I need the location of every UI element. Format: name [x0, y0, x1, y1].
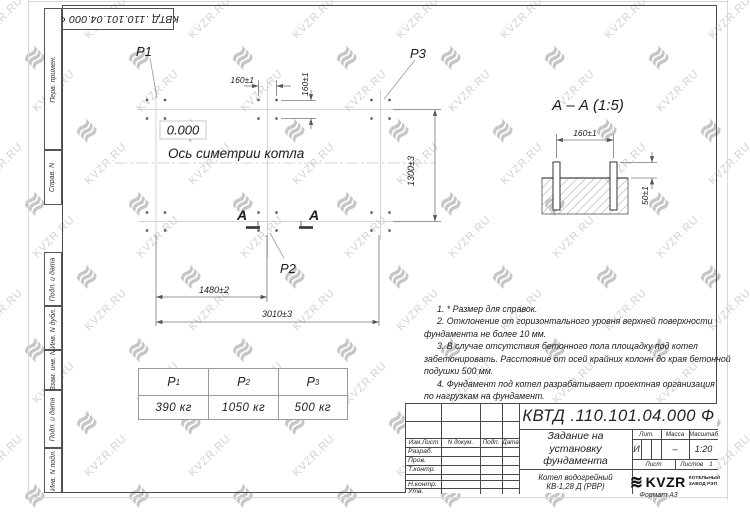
- tb-mass-value: –: [661, 439, 689, 459]
- tb-row-prov: Пров.: [408, 457, 426, 464]
- note-line: 2. Отклонение от горизонтального уровня …: [424, 315, 731, 327]
- tb-lit-label: Лит.: [632, 429, 661, 439]
- tb-product: Котел водогрейный КВ-1,28 Д (РВР): [519, 470, 632, 494]
- tb-col-dokum: N докум.: [441, 438, 480, 447]
- doc-number-rotated: КВТД .110.101.04.000 Ф: [57, 13, 179, 25]
- format-label: Формат А3: [600, 492, 717, 499]
- loads-head-p1: P1: [139, 369, 208, 396]
- kvzr-watermark-logo: ≋: [746, 479, 750, 514]
- loads-head-p2: P2: [209, 369, 277, 396]
- left-box-perv-primen: Перв. примен.: [44, 8, 62, 150]
- tb-row-nkontr: Н.контр.: [408, 481, 437, 488]
- tb-product-line: Котел водогрейный: [538, 473, 612, 483]
- tb-logo: ≋ KVZR КОТЕЛЬНЫЙ ЗАВОД РЭП: [632, 469, 718, 494]
- loads-col-p3: P3 500 кг: [278, 369, 347, 419]
- left-box-label: Инв. N дубл.: [50, 308, 57, 349]
- load-subscript: 1: [176, 378, 180, 387]
- left-box-label: Подп. и дата: [50, 257, 57, 301]
- loads-col-p2: P2 1050 кг: [208, 369, 277, 419]
- left-box-label: Перв. примен.: [50, 56, 57, 103]
- load-subscript: 2: [245, 378, 249, 387]
- tb-row-tkontr: Т.контр.: [408, 466, 435, 473]
- tb-col-data: Дата: [502, 438, 519, 447]
- kvzr-watermark-text: KVZR.RU: [0, 0, 25, 41]
- paper-edge-right: [727, 0, 728, 500]
- loads-value-p1: 390 кг: [139, 396, 208, 419]
- paper-edge-top: [28, 1, 728, 2]
- loads-value-p3: 500 кг: [279, 396, 347, 419]
- tb-row-razrab: Разраб.: [408, 448, 433, 455]
- kvzr-logo-text: KVZR: [646, 474, 686, 490]
- left-box-label: Подп. и дата: [50, 397, 57, 441]
- tb-sheets-value: 1: [709, 461, 713, 468]
- notes: 1. * Размер для справок.2. Отклонение от…: [424, 303, 731, 403]
- tb-sheets-label: Листов: [680, 461, 703, 468]
- tb-scale-value: 1:20: [689, 439, 718, 459]
- paper-edge-left: [28, 0, 29, 500]
- note-line: забетонировать. Расстояние от осей крайн…: [424, 353, 731, 365]
- loads-value-p2: 1050 кг: [209, 396, 277, 419]
- kvzr-watermark-logo: ≋: [746, 41, 750, 76]
- left-box-podp-data-1: Подп. и дата: [44, 252, 62, 306]
- drawing-sheet: { "colors": { "line": "#4a4a4a", "waterm…: [0, 0, 750, 500]
- left-box-label: Справ. N: [50, 163, 57, 192]
- doc-number-box: КВТД .110.101.04.000 Ф: [62, 8, 174, 30]
- tb-product-line: КВ-1,28 Д (РВР): [546, 482, 604, 492]
- left-box-sprav-n: Справ. N: [44, 150, 62, 205]
- loads-table: P1 390 кг P2 1050 кг P3 500 кг: [138, 368, 348, 420]
- kvzr-logo-caption: КОТЕЛЬНЫЙ ЗАВОД РЭП: [689, 476, 720, 487]
- left-box-label: Взам. инв. N: [50, 350, 57, 391]
- tb-title-line: фундамента: [543, 455, 608, 468]
- note-line: 1. * Размер для справок.: [424, 303, 731, 315]
- left-box-inv-podl: Инв. N подл.: [44, 448, 62, 493]
- note-line: по нагрузкам на фундамент.: [424, 390, 731, 402]
- kvzr-watermark-text: KVZR.RU: [0, 141, 25, 188]
- title-block: Изм.Лист N докум. Подп. Дата Разраб. Про…: [405, 403, 717, 493]
- load-symbol: P: [167, 375, 175, 389]
- load-symbol: P: [306, 375, 314, 389]
- tb-drawing-title: Задание на установку фундамента: [519, 429, 632, 469]
- tb-col-podp: Подп.: [480, 438, 502, 447]
- loads-col-p1: P1 390 кг: [139, 369, 208, 419]
- note-line: фундамента не более 10 мм.: [424, 328, 731, 340]
- tb-doc-number: КВТД .110.101.04.000 Ф: [519, 404, 718, 429]
- tb-sheets-cell: Листов 1: [675, 459, 718, 469]
- kvzr-watermark-text: KVZR.RU: [0, 287, 25, 334]
- kvzr-watermark-text: KVZR.RU: [0, 433, 25, 480]
- tb-scale-label: Масштаб: [689, 429, 718, 439]
- tb-col-izm: Изм.Лист: [406, 438, 441, 447]
- tb-row-utv: Утв.: [408, 488, 423, 495]
- left-box-vzam-inv: Взам. инв. N: [44, 350, 62, 390]
- left-box-label: Инв. N подл.: [50, 450, 57, 491]
- load-subscript: 3: [315, 378, 319, 387]
- note-line: 3. В случае отсутствия бетонного пола пл…: [424, 340, 731, 352]
- tb-lit-value: И: [632, 439, 641, 459]
- kvzr-logo-icon: ≋: [630, 470, 643, 493]
- note-line: 4. Фундамент под котел разрабатывает про…: [424, 378, 731, 390]
- kvzr-watermark-logo: ≋: [746, 187, 750, 222]
- left-box-inv-dubl: Инв. N дубл.: [44, 306, 62, 350]
- left-box-podp-data-2: Подп. и дата: [44, 390, 62, 448]
- loads-head-p3: P3: [279, 369, 347, 396]
- kvzr-watermark-logo: ≋: [746, 333, 750, 368]
- note-line: подушки 500 мм.: [424, 365, 731, 377]
- kvzr-logo-caption-line: ЗАВОД РЭП: [689, 482, 720, 488]
- tb-title-line: Задание на: [548, 430, 604, 443]
- tb-sheet-label: Лист: [632, 459, 675, 469]
- tb-mass-label: Масса: [661, 429, 689, 439]
- tb-title-line: установку: [549, 443, 601, 456]
